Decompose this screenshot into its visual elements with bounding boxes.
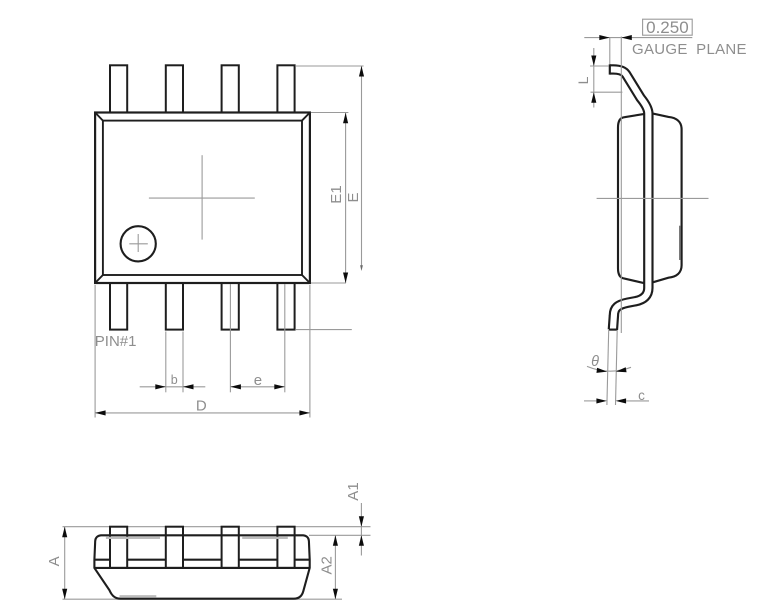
svg-text:PIN#1: PIN#1	[95, 333, 137, 350]
svg-text:b: b	[171, 373, 178, 387]
svg-text:GAUGE PLANE: GAUGE PLANE	[632, 41, 747, 58]
svg-text:0.250: 0.250	[646, 18, 689, 37]
svg-text:e: e	[254, 372, 262, 389]
svg-text:θ: θ	[591, 354, 599, 370]
svg-text:A2: A2	[319, 556, 336, 574]
svg-text:A1: A1	[345, 482, 362, 500]
svg-text:L: L	[575, 76, 591, 84]
svg-text:E1: E1	[328, 185, 345, 203]
svg-text:D: D	[196, 398, 207, 415]
svg-text:E: E	[345, 192, 362, 202]
svg-text:A: A	[46, 556, 63, 566]
svg-text:c: c	[638, 388, 645, 403]
